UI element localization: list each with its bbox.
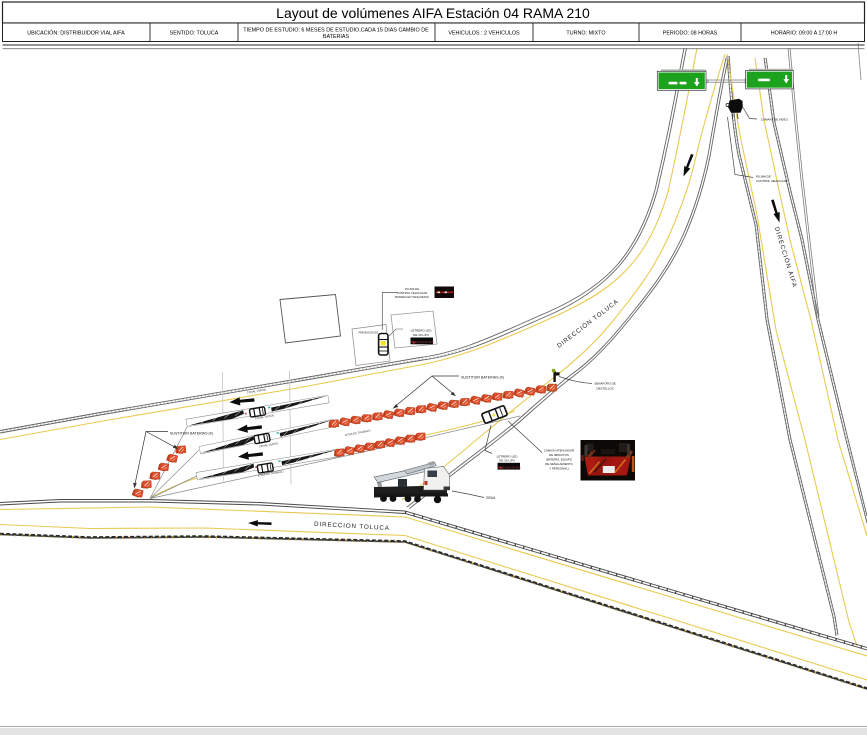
svg-text:DESTELLOS: DESTELLOS [596,386,613,390]
svg-text:BATERIA EN TANQUETAS: BATERIA EN TANQUETAS [395,295,429,299]
svg-text:VEHICULOS : 2 VEHICULOS: VEHICULOS : 2 VEHICULOS [448,30,520,36]
svg-text:DE 30 L/PV: DE 30 L/PV [413,333,429,337]
svg-text:(BATERIA, EQUIPO: (BATERIA, EQUIPO [546,458,573,462]
svg-text:CONTROL VEHICULAR: CONTROL VEHICULAR [756,179,787,183]
svg-text:PREVENCION IZQ.: PREVENCION IZQ. [359,332,380,334]
svg-text:GRUA: GRUA [486,496,496,500]
svg-text:DE 30 L/PV: DE 30 L/PV [499,459,515,463]
svg-text:PERIODO: 08 HORAS: PERIODO: 08 HORAS [663,30,718,36]
svg-text:UBICACIÓN: DISTRIBUIDOR VIAL A: UBICACIÓN: DISTRIBUIDOR VIAL AIFA [27,29,125,36]
svg-text:DE IMPACTOS: DE IMPACTOS [549,453,569,457]
svg-text:BATERIAS: BATERIAS [323,34,350,40]
svg-text:TIEMPO DE ESTUDIO: 6 MESES DE: TIEMPO DE ESTUDIO: 6 MESES DE ESTUDIO,CA… [243,28,429,34]
svg-text:SENTIDO: TOLUCA: SENTIDO: TOLUCA [170,30,219,36]
svg-text:SUSTITUIR BATERIAS (4): SUSTITUIR BATERIAS (4) [461,376,504,380]
svg-text:Y PERSONAL): Y PERSONAL) [549,467,568,471]
svg-text:CAMARA DE VIDEO: CAMARA DE VIDEO [761,117,789,121]
svg-text:SEMAFORO DE: SEMAFORO DE [594,382,615,386]
svg-text:CAMION ATENUADOR: CAMION ATENUADOR [544,449,574,453]
svg-text:DE SEÑALAMIENTO: DE SEÑALAMIENTO [545,461,573,466]
svg-text:P R E C A U C I O N: P R E C A U C I O N [410,340,434,344]
svg-text:TURNO: MIXTO: TURNO: MIXTO [566,30,605,36]
svg-text:SUSTITUIR BATERIAS (4): SUSTITUIR BATERIAS (4) [170,432,213,436]
svg-text:HORARIO: 09:00 A 17:00 H: HORARIO: 09:00 A 17:00 H [771,30,838,36]
svg-text:Layout de volúmenes AIFA Estac: Layout de volúmenes AIFA Estación 04 RAM… [276,5,590,21]
svg-text:P R E C A U C I O N: P R E C A U C I O N [497,465,521,469]
